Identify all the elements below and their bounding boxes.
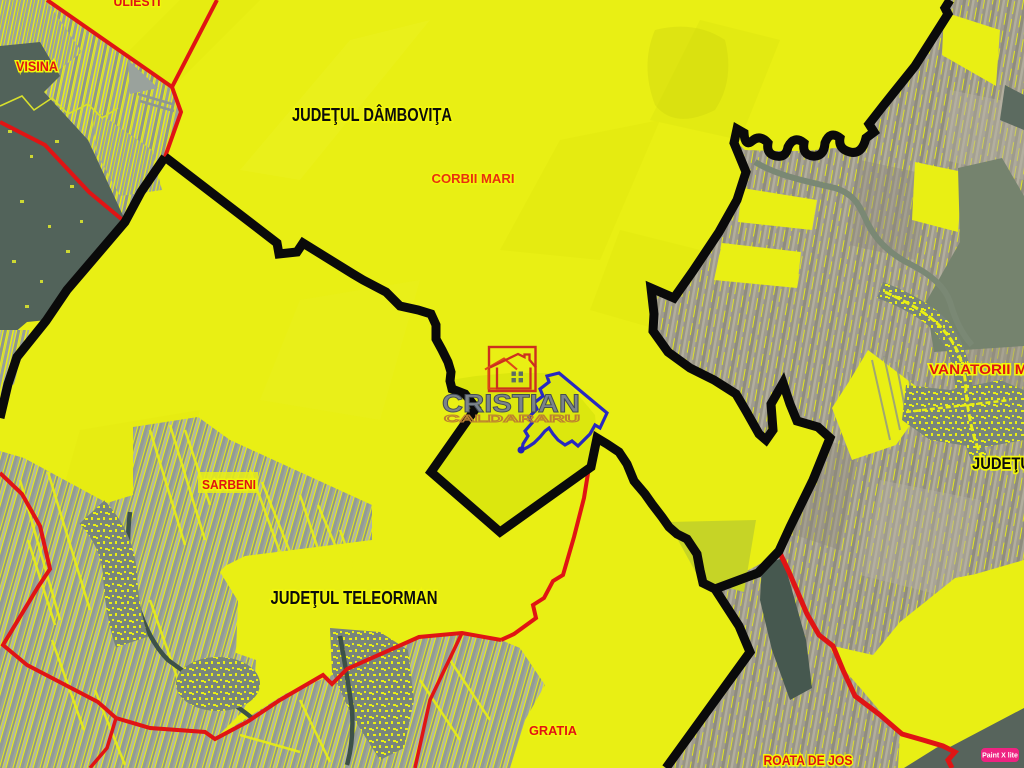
svg-text:ROATA DE JOS: ROATA DE JOS	[764, 752, 853, 768]
svg-text:CALDARARU: CALDARARU	[444, 413, 580, 425]
svg-text:CORBII MARI: CORBII MARI	[432, 171, 515, 186]
svg-text:GRATIA: GRATIA	[529, 723, 578, 738]
svg-text:VISINA: VISINA	[16, 58, 58, 74]
svg-text:Paint X lite: Paint X lite	[982, 753, 1018, 760]
svg-text:JUDEŢUL: JUDEŢUL	[972, 454, 1024, 473]
svg-text:JUDEŢUL TELEORMAN: JUDEŢUL TELEORMAN	[271, 587, 438, 608]
svg-text:ULIESTI: ULIESTI	[114, 0, 161, 9]
svg-text:SARBENI: SARBENI	[202, 477, 256, 492]
svg-text:VANATORII MICI: VANATORII MICI	[929, 361, 1024, 377]
svg-text:JUDEŢUL DÂMBOVIŢA: JUDEŢUL DÂMBOVIŢA	[292, 104, 452, 125]
